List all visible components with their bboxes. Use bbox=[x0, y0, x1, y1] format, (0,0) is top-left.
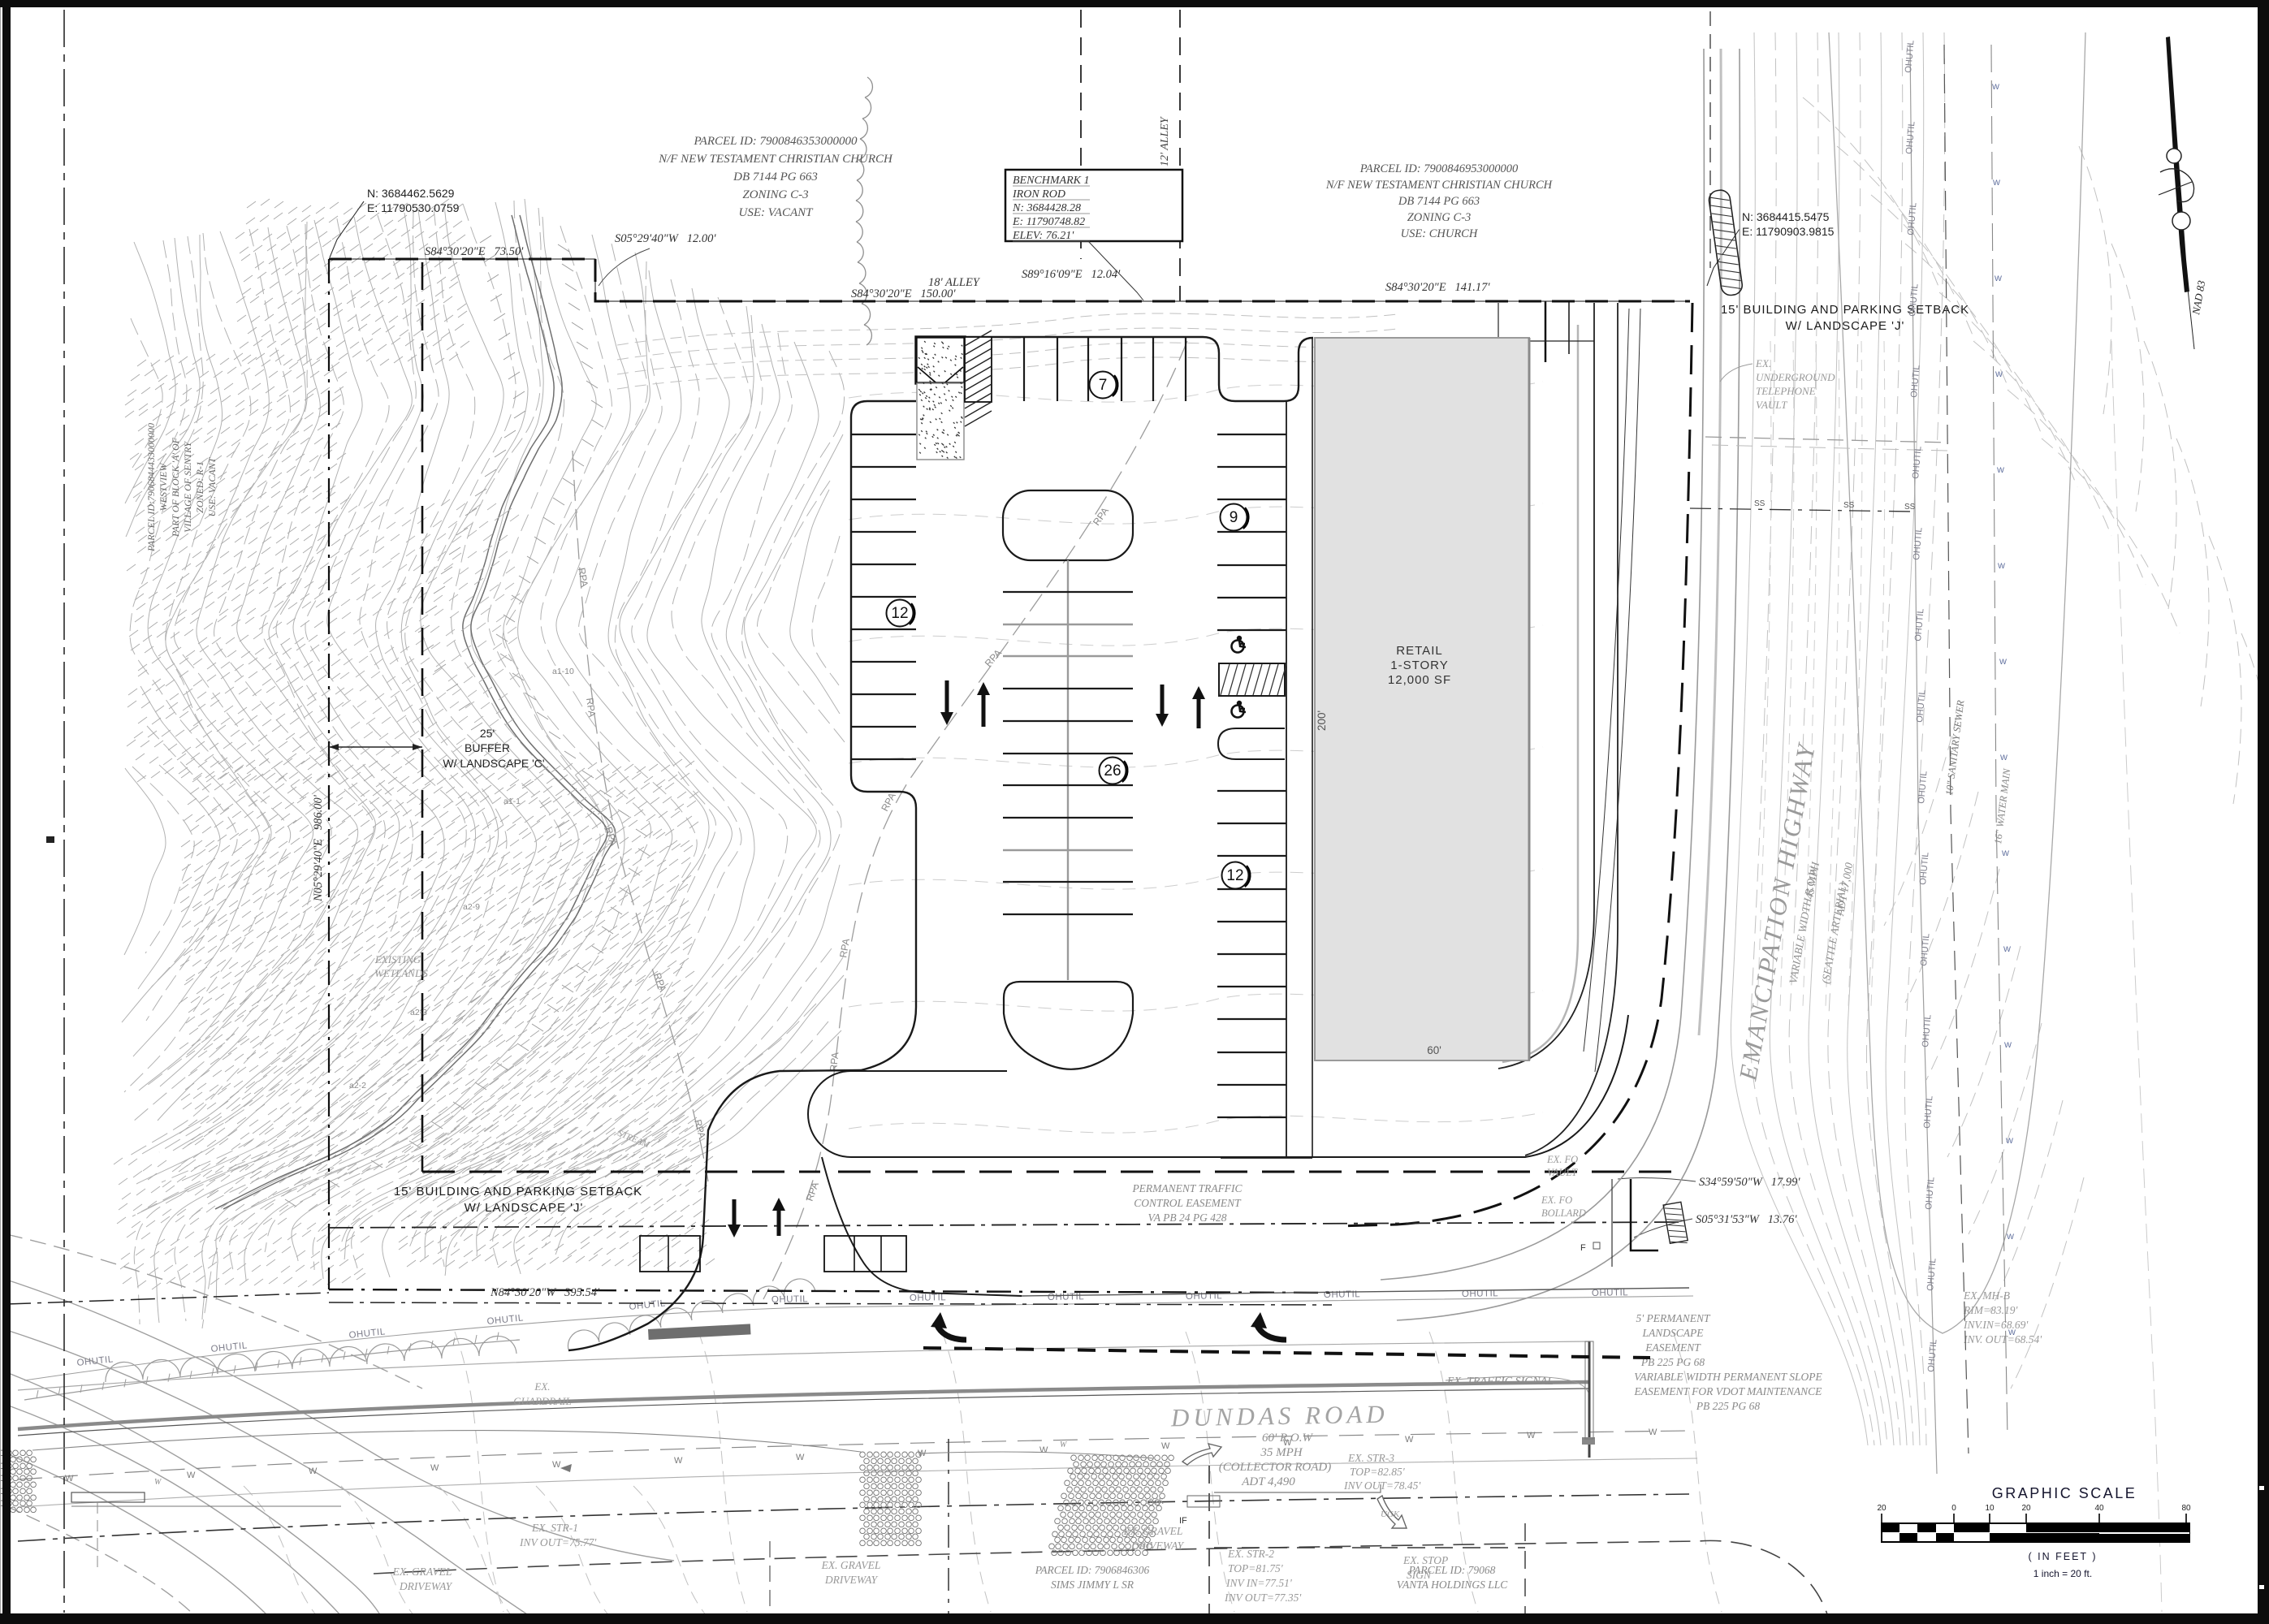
svg-text:W: W bbox=[1992, 83, 1999, 92]
svg-text:12' ALLEY: 12' ALLEY bbox=[1159, 115, 1171, 166]
svg-text:OHUTIL: OHUTIL bbox=[910, 1293, 946, 1303]
svg-text:W: W bbox=[1995, 370, 2003, 379]
svg-text:EX.: EX. bbox=[534, 1380, 550, 1393]
svg-text:W: W bbox=[552, 1460, 561, 1470]
svg-text:UGK: UGK bbox=[1145, 1497, 1165, 1506]
svg-text:EX.: EX. bbox=[1755, 357, 1771, 369]
svg-text:USE: CHURCH: USE: CHURCH bbox=[1401, 227, 1479, 240]
svg-text:TELEPHONE: TELEPHONE bbox=[1756, 385, 1816, 397]
svg-text:SS: SS bbox=[1843, 501, 1855, 510]
svg-text:W: W bbox=[1997, 466, 2004, 475]
svg-text:N: 3684462.5629: N: 3684462.5629 bbox=[367, 187, 455, 200]
svg-text:PARCEL ID: 7900846353000000: PARCEL ID: 7900846353000000 bbox=[693, 135, 858, 148]
svg-text:E: 11790530.0759: E: 11790530.0759 bbox=[367, 201, 460, 214]
svg-text:F: F bbox=[1580, 1243, 1586, 1253]
svg-text:OHUTIL: OHUTIL bbox=[1324, 1289, 1360, 1300]
svg-text:SS: SS bbox=[1904, 503, 1916, 512]
svg-text:W: W bbox=[65, 1474, 74, 1484]
svg-text:USE: VACANT: USE: VACANT bbox=[206, 456, 218, 516]
svg-text:15' BUILDING AND PARKING SETBA: 15' BUILDING AND PARKING SETBACK bbox=[394, 1185, 642, 1199]
svg-text:S05°31'53"W 13.76': S05°31'53"W 13.76' bbox=[1696, 1213, 1797, 1226]
svg-text:GRAPHIC SCALE: GRAPHIC SCALE bbox=[1992, 1485, 2137, 1501]
svg-text:S05°29'40"W 12.00': S05°29'40"W 12.00' bbox=[615, 232, 716, 245]
svg-text:W: W bbox=[2006, 1137, 2013, 1146]
svg-text:GUARDRAIL: GUARDRAIL bbox=[513, 1395, 572, 1407]
svg-text:DUNDAS ROAD: DUNDAS ROAD bbox=[1170, 1400, 1389, 1432]
svg-text:W/ LANDSCAPE 'J': W/ LANDSCAPE 'J' bbox=[1786, 319, 1905, 333]
svg-text:W: W bbox=[2004, 1041, 2012, 1050]
svg-text:CONTROL EASEMENT: CONTROL EASEMENT bbox=[1134, 1197, 1242, 1209]
svg-text:W: W bbox=[1405, 1435, 1414, 1445]
svg-text:ELEV: 76.21': ELEV: 76.21' bbox=[1012, 230, 1074, 242]
svg-text:12: 12 bbox=[1226, 867, 1243, 884]
svg-text:PARCEL ID: 7906846306: PARCEL ID: 7906846306 bbox=[1035, 1564, 1150, 1576]
svg-text:W: W bbox=[1649, 1427, 1657, 1437]
svg-text:35 MPH: 35 MPH bbox=[1260, 1446, 1303, 1459]
svg-text:N05°29'40"E 986.00': N05°29'40"E 986.00' bbox=[312, 794, 325, 902]
svg-text:S34°59'50"W 17.99': S34°59'50"W 17.99' bbox=[1699, 1176, 1800, 1189]
svg-text:1 inch = 20 ft.: 1 inch = 20 ft. bbox=[2033, 1568, 2092, 1579]
svg-text:W: W bbox=[1039, 1445, 1048, 1455]
svg-text:S89°16'09"E 12.04': S89°16'09"E 12.04' bbox=[1022, 268, 1121, 281]
svg-text:INV OUT=75.77': INV OUT=75.77' bbox=[519, 1536, 597, 1548]
svg-text:INV OUT=77.35': INV OUT=77.35' bbox=[1224, 1592, 1302, 1604]
svg-text:OHUTIL: OHUTIL bbox=[1048, 1292, 1084, 1302]
svg-text:25': 25' bbox=[480, 727, 495, 740]
svg-text:INV. OUT=68.54': INV. OUT=68.54' bbox=[1963, 1333, 2042, 1345]
svg-text:a2-9: a2-9 bbox=[463, 902, 480, 912]
svg-text:DRIVEWAY: DRIVEWAY bbox=[824, 1574, 879, 1586]
svg-text:UNDERGROUND: UNDERGROUND bbox=[1756, 371, 1835, 383]
svg-text:ZONING C-3: ZONING C-3 bbox=[1407, 211, 1472, 224]
svg-text:5' PERMANENT: 5' PERMANENT bbox=[1636, 1312, 1710, 1324]
svg-text:ZONING C-3: ZONING C-3 bbox=[742, 188, 808, 201]
svg-text:DB 7144 PG 663: DB 7144 PG 663 bbox=[733, 171, 818, 184]
svg-text:EX. STR-3: EX. STR-3 bbox=[1347, 1452, 1394, 1464]
svg-text:18' ALLEY: 18' ALLEY bbox=[928, 276, 981, 289]
svg-text:E: 11790748.82: E: 11790748.82 bbox=[1012, 216, 1085, 228]
svg-text:USE: VACANT: USE: VACANT bbox=[739, 206, 815, 219]
svg-text:N84°30'20"W 395.54': N84°30'20"W 395.54' bbox=[490, 1286, 600, 1299]
svg-text:12: 12 bbox=[891, 605, 908, 622]
svg-text:EX. STR-1: EX. STR-1 bbox=[531, 1522, 578, 1534]
svg-text:(COLLECTOR ROAD): (COLLECTOR ROAD) bbox=[1219, 1461, 1332, 1474]
svg-text:W: W bbox=[1161, 1441, 1170, 1451]
svg-text:W: W bbox=[1995, 274, 2002, 283]
svg-text:S84°30'20"E 150.00': S84°30'20"E 150.00' bbox=[851, 287, 956, 300]
svg-text:INV.IN=68.69': INV.IN=68.69' bbox=[1963, 1319, 2029, 1331]
svg-text:60': 60' bbox=[1427, 1044, 1441, 1056]
svg-text:BUFFER: BUFFER bbox=[465, 741, 510, 754]
svg-text:W: W bbox=[1999, 658, 2007, 667]
svg-text:W/ LANDSCAPE 'C': W/ LANDSCAPE 'C' bbox=[443, 757, 544, 770]
svg-text:BOLLARD: BOLLARD bbox=[1541, 1207, 1586, 1219]
svg-text:S84°30'20"E 73.50': S84°30'20"E 73.50' bbox=[425, 245, 524, 258]
svg-text:26: 26 bbox=[1104, 762, 1121, 780]
svg-text:WETLANDS: WETLANDS bbox=[374, 967, 428, 979]
svg-text:( IN FEET ): ( IN FEET ) bbox=[2029, 1551, 2098, 1562]
svg-text:W: W bbox=[1993, 179, 2000, 188]
svg-text:W: W bbox=[796, 1453, 805, 1462]
svg-text:TOP=81.75': TOP=81.75' bbox=[1228, 1562, 1284, 1574]
svg-text:EX. GRAVEL: EX. GRAVEL bbox=[821, 1559, 881, 1571]
svg-text:EXISTING: EXISTING bbox=[374, 953, 421, 965]
svg-text:LANDSCAPE: LANDSCAPE bbox=[1641, 1327, 1704, 1339]
svg-text:N/F NEW TESTAMENT CHRISTIAN: N/F NEW TESTAMENT CHRISTIAN CHURCH bbox=[658, 153, 893, 166]
svg-text:RPA: RPA bbox=[828, 1052, 841, 1072]
svg-text:SS: SS bbox=[1754, 499, 1765, 508]
svg-text:ZONED: R-1: ZONED: R-1 bbox=[194, 461, 205, 513]
svg-text:20: 20 bbox=[2021, 1504, 2031, 1513]
svg-text:W: W bbox=[2003, 945, 2011, 954]
svg-text:VARIABLE WIDTH PERMANENT SL: VARIABLE WIDTH PERMANENT SLOPE bbox=[1634, 1371, 1822, 1383]
svg-text:12,000 SF: 12,000 SF bbox=[1388, 673, 1451, 687]
svg-text:SIMS JIMMY L SR: SIMS JIMMY L SR bbox=[1051, 1579, 1134, 1591]
svg-text:40: 40 bbox=[2094, 1504, 2104, 1513]
svg-text:VA PB 24 PG 428: VA PB 24 PG 428 bbox=[1148, 1212, 1227, 1224]
svg-text:a1-10: a1-10 bbox=[552, 667, 574, 676]
svg-text:INV OUT=78.45': INV OUT=78.45' bbox=[1343, 1479, 1421, 1492]
svg-text:VAULT: VAULT bbox=[1756, 399, 1787, 411]
svg-text:15' BUILDING AND PARKING SETBA: 15' BUILDING AND PARKING SETBACK bbox=[1721, 303, 1969, 317]
svg-text:W: W bbox=[187, 1471, 196, 1480]
svg-text:W: W bbox=[674, 1456, 683, 1466]
svg-text:60' R.O.W: 60' R.O.W bbox=[1262, 1432, 1313, 1445]
svg-text:W: W bbox=[2002, 849, 2009, 858]
svg-text:7: 7 bbox=[1099, 377, 1108, 394]
svg-text:W: W bbox=[2000, 754, 2008, 762]
svg-text:PB 225 PG 68: PB 225 PG 68 bbox=[1696, 1400, 1761, 1412]
svg-text:PARCEL ID: 79068: PARCEL ID: 79068 bbox=[1408, 1564, 1496, 1576]
svg-text:PARCEL ID: 7900846953000000: PARCEL ID: 7900846953000000 bbox=[1359, 162, 1519, 175]
svg-text:W: W bbox=[1527, 1431, 1536, 1440]
svg-text:BENCHMARK 1: BENCHMARK 1 bbox=[1013, 175, 1090, 187]
svg-text:DRIVEWAY: DRIVEWAY bbox=[1130, 1540, 1185, 1552]
svg-text:ADT 4,490: ADT 4,490 bbox=[1241, 1475, 1295, 1488]
svg-text:TOP=82.85': TOP=82.85' bbox=[1350, 1466, 1406, 1478]
svg-text:W: W bbox=[309, 1466, 318, 1476]
svg-text:80: 80 bbox=[2181, 1504, 2191, 1513]
svg-text:W: W bbox=[2007, 1233, 2014, 1242]
svg-text:INV IN=77.51': INV IN=77.51' bbox=[1225, 1577, 1293, 1589]
svg-text:W: W bbox=[1998, 562, 2005, 571]
svg-text:EX. FO: EX. FO bbox=[1541, 1194, 1572, 1206]
svg-text:DB 7144 PG 663: DB 7144 PG 663 bbox=[1398, 195, 1480, 208]
svg-text:EX. TRAFFIC SIGNAL: EX. TRAFFIC SIGNAL bbox=[1446, 1376, 1554, 1388]
svg-text:10: 10 bbox=[1985, 1504, 1995, 1513]
svg-text:W/ LANDSCAPE 'J': W/ LANDSCAPE 'J' bbox=[465, 1201, 584, 1215]
svg-text:EASEMENT FOR VDOT MAINTENAN: EASEMENT FOR VDOT MAINTENANCE bbox=[1634, 1385, 1823, 1397]
svg-text:9: 9 bbox=[1230, 509, 1238, 526]
svg-text:N: 3684428.28: N: 3684428.28 bbox=[1012, 202, 1081, 214]
svg-text:E: 11790903.9815: E: 11790903.9815 bbox=[1742, 225, 1835, 238]
svg-text:EX. GRAVEL: EX. GRAVEL bbox=[392, 1566, 452, 1578]
svg-text:W: W bbox=[430, 1463, 439, 1473]
svg-text:EX. FO: EX. FO bbox=[1546, 1154, 1578, 1165]
svg-text:VANTA HOLDINGS LLC: VANTA HOLDINGS LLC bbox=[1397, 1579, 1509, 1591]
svg-text:IRON ROD: IRON ROD bbox=[1012, 188, 1065, 201]
svg-text:UGK: UGK bbox=[1381, 1510, 1400, 1519]
svg-text:EX. GRAVEL: EX. GRAVEL bbox=[1123, 1525, 1183, 1537]
svg-text:PART OF BLOCK 'A' OF: PART OF BLOCK 'A' OF bbox=[170, 437, 181, 538]
svg-text:0: 0 bbox=[1951, 1504, 1956, 1513]
svg-text:PERMANENT TRAFFIC: PERMANENT TRAFFIC bbox=[1131, 1182, 1243, 1194]
svg-text:RETAIL: RETAIL bbox=[1396, 644, 1442, 658]
svg-text:EX. STR-2: EX. STR-2 bbox=[1227, 1548, 1274, 1560]
svg-text:a1-1: a1-1 bbox=[504, 797, 521, 806]
svg-text:20: 20 bbox=[1877, 1504, 1887, 1513]
svg-text:WESTVIEW: WESTVIEW bbox=[158, 463, 169, 512]
svg-text:W: W bbox=[2008, 1328, 2016, 1337]
svg-text:DRIVEWAY: DRIVEWAY bbox=[399, 1580, 453, 1592]
svg-text:N/F NEW TESTAMENT CHRISTIAN: N/F NEW TESTAMENT CHRISTIAN CHURCH bbox=[1325, 179, 1554, 192]
svg-text:EX. MH-B: EX. MH-B bbox=[1963, 1289, 2010, 1302]
svg-text:N: 3684415.5475: N: 3684415.5475 bbox=[1742, 210, 1830, 223]
svg-text:a2-3: a2-3 bbox=[410, 1008, 427, 1017]
svg-text:VAULT: VAULT bbox=[1547, 1167, 1578, 1178]
svg-text:RIM=83.19': RIM=83.19' bbox=[1963, 1304, 2018, 1316]
svg-text:PARCEL ID:7906844433000000: PARCEL ID:7906844433000000 bbox=[145, 423, 157, 552]
svg-text:a2-2: a2-2 bbox=[349, 1081, 366, 1091]
svg-text:IF: IF bbox=[1179, 1516, 1187, 1526]
svg-text:EASEMENT: EASEMENT bbox=[1644, 1341, 1701, 1354]
svg-text:S84°30'20"E 141.17': S84°30'20"E 141.17' bbox=[1385, 281, 1490, 294]
svg-text:OHUTIL: OHUTIL bbox=[1592, 1288, 1628, 1298]
svg-text:1-STORY: 1-STORY bbox=[1390, 659, 1448, 672]
svg-text:VILLAGE OF SENTRY: VILLAGE OF SENTRY bbox=[182, 441, 193, 533]
svg-text:200': 200' bbox=[1316, 710, 1328, 731]
